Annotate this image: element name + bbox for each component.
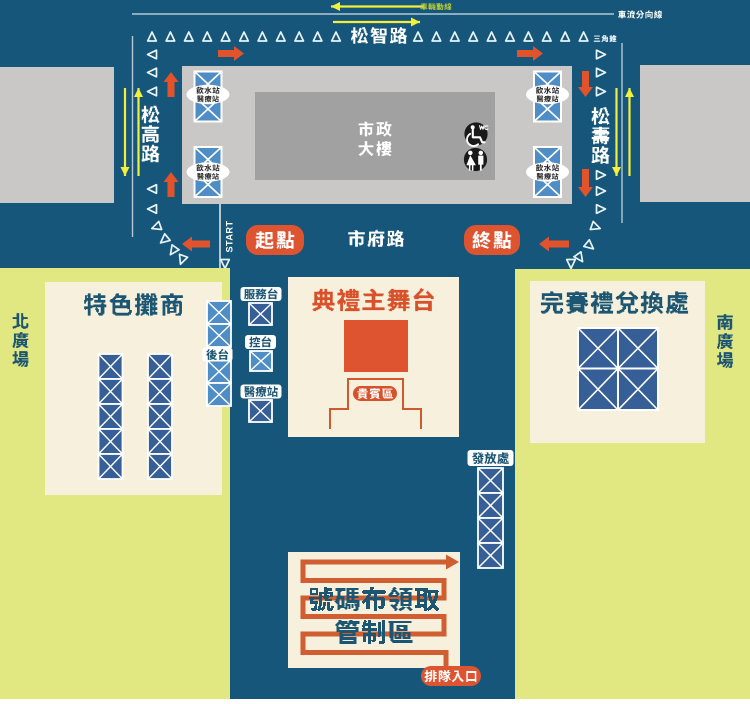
svg-text:START: START (225, 221, 235, 253)
